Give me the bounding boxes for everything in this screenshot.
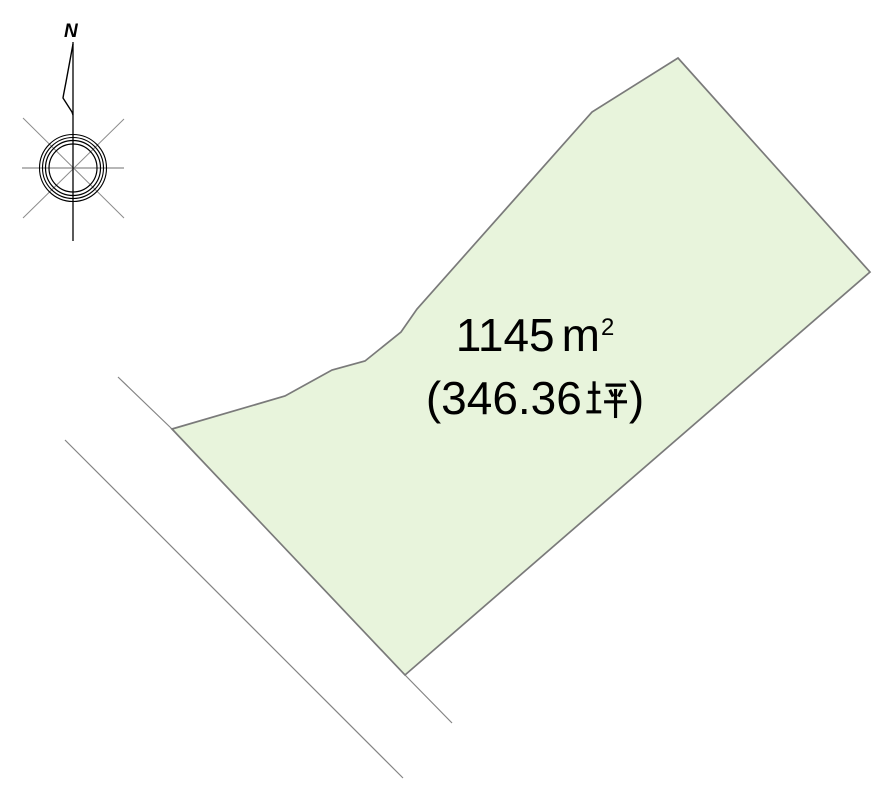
area-m2-value: 1145 [456, 309, 555, 361]
north-pennant-icon [63, 44, 73, 115]
land-plot-drawing: N 1145m2 (346.36 ) [0, 0, 894, 800]
area-label: 1145m2 (346.36 ) [285, 296, 785, 430]
area-tsubo-line: (346.36 ) [285, 367, 785, 430]
north-label: N [64, 21, 79, 42]
north-arrow-compass: N [22, 21, 124, 241]
area-m2-line: 1145m2 [285, 296, 785, 367]
area-m2-exponent: 2 [601, 314, 614, 341]
area-tsubo-suffix: ) [629, 372, 644, 424]
tsubo-character-glyph [585, 376, 627, 420]
area-m2-unit: m [562, 309, 600, 361]
area-tsubo-prefix: (346.36 [426, 372, 582, 424]
